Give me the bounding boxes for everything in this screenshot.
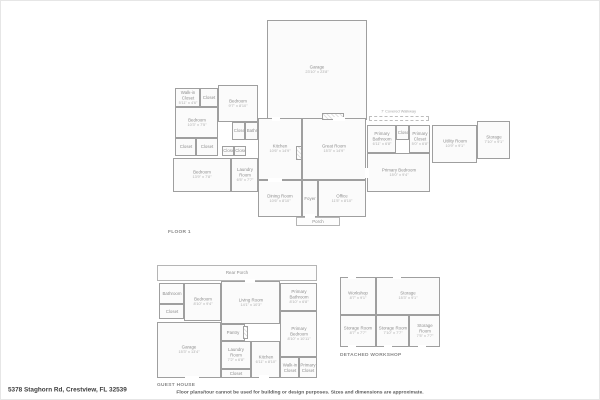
room-storage-room: Storage Room7'5" x 7'7" xyxy=(409,315,440,347)
door-opening xyxy=(185,376,199,380)
door-opening xyxy=(245,279,255,283)
room-closet: Closet xyxy=(200,88,218,107)
room-bedroom: Bedroom13'9" x 7'8" xyxy=(173,158,231,192)
room-rear-porch: Rear Porch xyxy=(157,265,317,281)
room-primary-closet: Primary Closet xyxy=(299,357,317,378)
room-closet: Closet xyxy=(221,369,251,378)
door-opening xyxy=(305,214,315,218)
room-pantry: Pantry xyxy=(221,324,245,341)
room-walkin-closet: Walk-in Closet xyxy=(280,357,299,378)
room-storage: Storage7'10" x 9'1" xyxy=(477,121,510,159)
room-utility: Utility Room10'9" x 9'1" xyxy=(432,125,477,163)
door-opening xyxy=(348,345,356,349)
room-primary-bedroom: Primary Bedroom15'0" x 9'4" xyxy=(367,153,430,192)
kitchen-island-icon xyxy=(296,146,302,160)
floorplan-page: { "page": { "address": "5378 Staghorn Rd… xyxy=(0,0,600,400)
room-porch: Porch xyxy=(296,217,340,226)
door-opening xyxy=(272,117,280,121)
door-opening xyxy=(348,275,356,279)
room-primary-closet: Primary Closet5'0" x 6'8" xyxy=(409,125,430,153)
room-bedroom: Bedroom9'7" x 8'10" xyxy=(218,85,258,122)
room-great-room: Great Room15'3" x 14'9" xyxy=(302,118,366,180)
room-label: Garage23'10" x 23'8" xyxy=(270,65,364,75)
room-storage-room: Storage Room7'10" x 7'7" xyxy=(376,315,409,347)
room-workshop: Workshop8'7" x 9'1" xyxy=(340,277,376,315)
room-dining: Dining Room10'6" x 8'10" xyxy=(258,180,302,217)
room-closet: Closet xyxy=(222,146,234,156)
room-closet: Closet xyxy=(159,304,184,319)
guest-house-plan: Rear Porch Bathroom Closet Bedroom8'10" … xyxy=(155,263,325,393)
room-bedroom: Bedroom10'3" x 7'5" xyxy=(175,107,218,138)
room-laundry: Laundry Room6'5" x 7'7" xyxy=(231,158,258,192)
room-garage: Garage15'3" x 13'4" xyxy=(157,322,221,378)
room-laundry: Laundry Room7'2" x 6'8" xyxy=(221,341,251,369)
door-opening xyxy=(365,168,369,178)
room-storage-room: Storage Room8'7" x 7'7" xyxy=(340,315,376,347)
door-opening xyxy=(268,178,282,182)
room-bedroom: Bedroom8'10" x 9'4" xyxy=(184,283,221,321)
walkway-note: 7' Covered Walkway xyxy=(381,110,416,114)
room-primary-bedroom: Primary Bedroom8'10" x 10'11" xyxy=(280,311,317,357)
workshop-plan: Workshop8'7" x 9'1" Storage15'3" x 9'1" … xyxy=(338,275,448,365)
room-closet: Closet xyxy=(232,122,245,140)
room-office: Office11'5" x 8'10" xyxy=(318,180,366,217)
room-living-room: Living Room14'1" x 10'3" xyxy=(221,281,280,324)
property-address: 5378 Staghorn Rd, Crestview, FL 32539 xyxy=(8,386,127,393)
room-bathroom: Bathroom xyxy=(159,283,184,304)
room-bathroom: Bathroom xyxy=(245,122,258,140)
door-opening xyxy=(333,117,345,121)
room-primary-bathroom: Primary Bathroom8'10" x 6'8" xyxy=(280,283,317,311)
floor1-title: FLOOR 1 xyxy=(168,229,191,234)
door-opening xyxy=(384,345,392,349)
door-opening xyxy=(259,375,269,379)
room-kitchen: Kitchen6'11" x 8'10" xyxy=(251,341,280,378)
room-closet: Closet xyxy=(175,138,196,156)
pantry-shelf-icon xyxy=(243,326,248,339)
door-opening xyxy=(418,345,426,349)
room-storage: Storage15'3" x 9'1" xyxy=(376,277,440,315)
room-garage: Garage23'10" x 23'8" xyxy=(267,20,367,120)
disclaimer-text: Floor plans/tour cannot be used for buil… xyxy=(114,389,486,395)
guest-house-title: GUEST HOUSE xyxy=(157,382,195,387)
room-primary-bathroom: Primary Bathroom6'11" x 6'8" xyxy=(367,125,396,153)
covered-walkway xyxy=(369,116,429,121)
floor1-plan: Garage23'10" x 23'8" Walk-in Closet5'11"… xyxy=(168,18,513,243)
workshop-title: DETACHED WORKSHOP xyxy=(340,352,402,357)
room-closet: Closet xyxy=(196,138,218,156)
room-foyer: Foyer xyxy=(302,180,318,217)
room-closet: Closet xyxy=(396,125,409,140)
room-closet: Closet xyxy=(234,146,246,156)
room-walkin-closet: Walk-in Closet5'11" x 4'6" xyxy=(175,88,200,107)
door-opening xyxy=(393,275,401,279)
